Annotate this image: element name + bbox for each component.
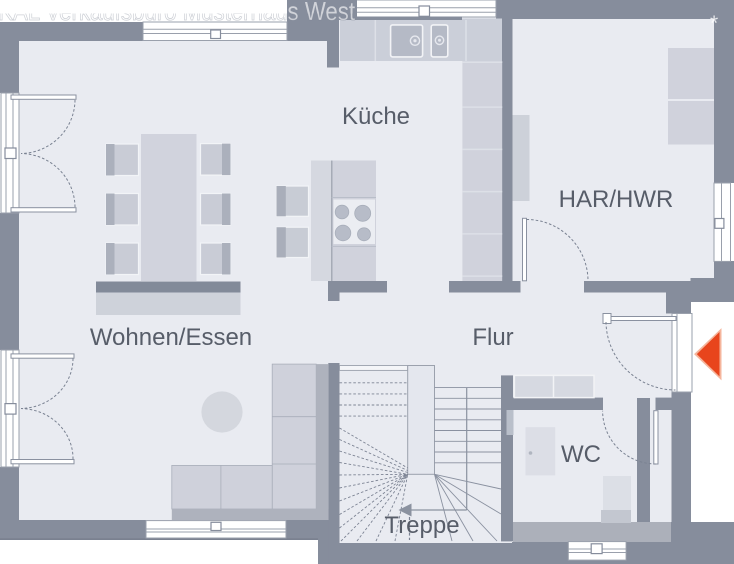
svg-text:HAR/HWR: HAR/HWR [559,186,674,213]
svg-text:Flur: Flur [472,324,513,351]
svg-text:Küche: Küche [342,103,410,130]
svg-text:WC: WC [561,441,601,468]
svg-text:Wohnen/Essen: Wohnen/Essen [90,324,252,351]
svg-text:*: * [710,12,718,35]
svg-text:Treppe: Treppe [384,512,459,539]
